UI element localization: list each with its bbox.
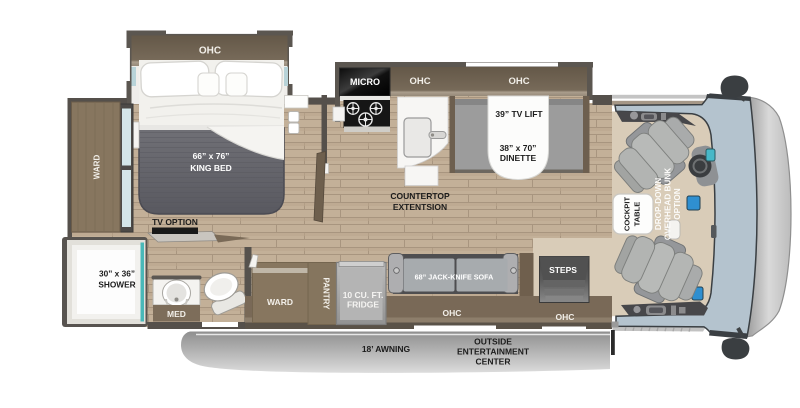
svg-text:OHC: OHC [556,312,575,322]
svg-text:MED: MED [167,309,186,319]
svg-text:ENTERTAINMENT: ENTERTAINMENT [457,347,530,357]
svg-text:OHC: OHC [199,46,221,57]
svg-text:18’ AWNING: 18’ AWNING [362,344,411,354]
svg-text:COCKPIT: COCKPIT [623,197,632,232]
svg-text:TABLE: TABLE [633,202,642,227]
svg-text:EXTENTSION: EXTENTSION [393,202,447,212]
svg-text:STEPS: STEPS [549,265,577,275]
svg-text:66” x 76”: 66” x 76” [193,151,230,161]
svg-text:OUTSIDE: OUTSIDE [474,337,512,347]
svg-text:WARD: WARD [267,297,293,307]
svg-text:10 CU. FT.: 10 CU. FT. [343,290,384,300]
svg-text:FRIDGE: FRIDGE [347,300,379,310]
svg-text:39” TV LIFT: 39” TV LIFT [495,109,543,119]
svg-text:COUNTERTOP: COUNTERTOP [390,191,450,201]
svg-text:DINETTE: DINETTE [500,153,537,163]
svg-text:38” x 70”: 38” x 70” [500,143,537,153]
svg-text:68” JACK-KNIFE SOFA: 68” JACK-KNIFE SOFA [415,273,494,282]
svg-text:WARD: WARD [93,155,102,180]
svg-text:TV OPTION: TV OPTION [152,217,198,227]
svg-text:OHC: OHC [508,76,529,87]
svg-text:PANTRY: PANTRY [322,278,331,311]
svg-text:DROP-DOWN: DROP-DOWN [654,178,663,230]
svg-text:SHOWER: SHOWER [98,280,135,290]
svg-text:OPTION: OPTION [673,188,682,219]
svg-text:OHC: OHC [409,76,430,87]
svg-text:OHC: OHC [443,308,462,318]
svg-text:KING BED: KING BED [190,163,232,173]
svg-text:MICRO: MICRO [350,77,380,87]
svg-text:CENTER: CENTER [476,357,511,367]
svg-text:30” x 36”: 30” x 36” [99,269,135,279]
svg-text:OVERHEAD BUNK: OVERHEAD BUNK [664,168,673,240]
